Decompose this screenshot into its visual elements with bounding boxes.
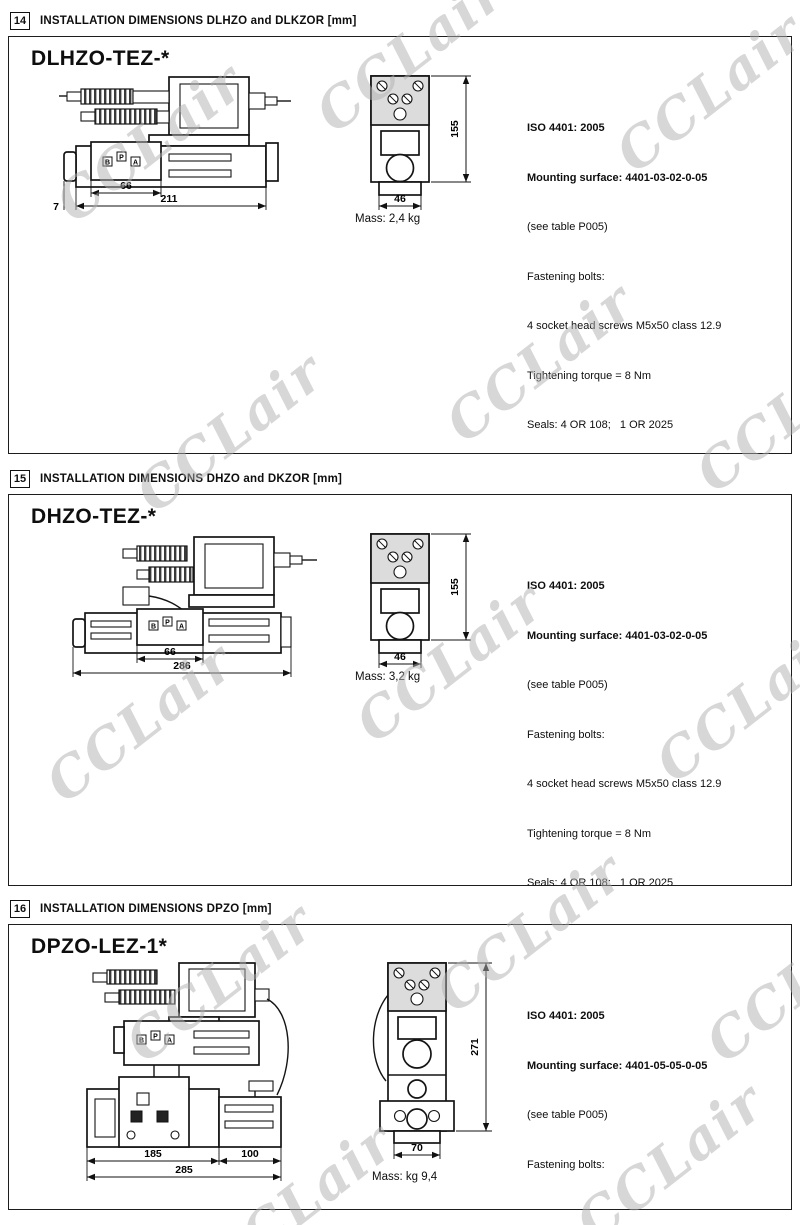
section-title: INSTALLATION DIMENSIONS DHZO and DKZOR [… xyxy=(40,473,342,485)
spec-line: Mounting surface: 4401-03-02-0-05 xyxy=(527,628,781,645)
spec-line: (see table P005) xyxy=(527,1107,781,1124)
valve-side-view: B P A xyxy=(73,537,317,653)
spec-line: Fastening bolts: xyxy=(527,269,781,286)
valve-block-dhzo: DHZO-TEZ-* xyxy=(19,505,781,886)
section-title: INSTALLATION DIMENSIONS DPZO [mm] xyxy=(40,903,272,915)
section-number: 14 xyxy=(10,12,30,30)
front-view: 271 70 Mass: kg 9,4 xyxy=(362,959,524,1183)
model-title: DPZO-LEZ-1* xyxy=(31,935,781,959)
svg-text:B: B xyxy=(151,624,156,631)
section-16-box: DPZO-LEZ-1* xyxy=(8,924,792,1210)
dim-length: 286 xyxy=(173,660,191,672)
dim-right: 100 xyxy=(241,1148,259,1160)
svg-text:P: P xyxy=(165,620,170,627)
spec-line: Fastening bolts: xyxy=(527,727,781,744)
section-number: 15 xyxy=(10,470,30,488)
dimension-lines: 185 100 285 xyxy=(87,1147,281,1181)
valve-block-dpzo: DPZO-LEZ-1* xyxy=(19,935,781,1210)
section-14-box: DLHZO-TEZ-* xyxy=(8,36,792,454)
section-15-box: DHZO-TEZ-* xyxy=(8,494,792,886)
mass-label: Mass: 2,4 kg xyxy=(355,213,497,225)
svg-text:A: A xyxy=(179,624,184,631)
dim-face-width: 70 xyxy=(411,1142,423,1154)
front-view: 155 46 Mass: 3,2 kg xyxy=(345,529,497,683)
front-view-drawing: 155 46 xyxy=(345,529,497,671)
svg-text:B: B xyxy=(105,160,110,167)
spec-line: ISO 4401: 2005 xyxy=(527,120,781,137)
section-number: 16 xyxy=(10,900,30,918)
side-view-drawing: B P A xyxy=(19,959,354,1185)
dim-inner: 66 xyxy=(164,646,176,658)
side-view-drawing: B P A 66 286 xyxy=(19,529,337,681)
spec-line: Mounting surface: 4401-05-05-0-05 xyxy=(527,1058,781,1075)
svg-text:P: P xyxy=(119,155,124,162)
spec-line: 4 socket head screws M5x50 class 12.9 xyxy=(527,776,781,793)
spec-line: Mounting surface: 4401-03-02-0-05 xyxy=(527,170,781,187)
dim-face-height: 155 xyxy=(449,578,461,596)
dim-offset: 7 xyxy=(53,201,59,213)
dim-length: 285 xyxy=(175,1164,193,1176)
model-title: DLHZO-TEZ-* xyxy=(31,47,781,71)
spec-list: ISO 4401: 2005 Mounting surface: 4401-03… xyxy=(527,545,781,886)
front-view-drawing: 155 46 xyxy=(345,71,497,213)
side-view-drawing: B P A 66 211 xyxy=(19,71,337,221)
model-title: DHZO-TEZ-* xyxy=(31,505,781,529)
spec-line: Seals: 4 OR 108; 1 OR 2025 xyxy=(527,875,781,886)
front-view-drawing: 271 70 xyxy=(362,959,524,1171)
section-title: INSTALLATION DIMENSIONS DLHZO and DLKZOR… xyxy=(40,15,357,27)
spec-line: (see table P005) xyxy=(527,677,781,694)
section-15-header: 15 INSTALLATION DIMENSIONS DHZO and DKZO… xyxy=(10,470,792,488)
dim-left: 185 xyxy=(144,1148,162,1160)
spec-line: Fastening bolts: xyxy=(527,1157,781,1174)
spec-line: ISO 4401: 2005 xyxy=(527,1008,781,1025)
dim-face-height: 271 xyxy=(469,1038,481,1056)
svg-text:A: A xyxy=(133,160,138,167)
dim-face-width: 46 xyxy=(394,193,406,205)
valve-block-dlhzo: DLHZO-TEZ-* xyxy=(19,47,781,454)
valve-side-view: B P A xyxy=(87,963,288,1147)
datasheet-page: 14 INSTALLATION DIMENSIONS DLHZO and DLK… xyxy=(0,0,800,1225)
dim-face-width: 46 xyxy=(394,651,406,663)
spec-list: ISO 4401: 2005 Mounting surface: 4401-05… xyxy=(527,975,781,1210)
svg-text:A: A xyxy=(167,1038,172,1045)
spec-list: ISO 4401: 2005 Mounting surface: 4401-03… xyxy=(527,87,781,454)
mass-label: Mass: kg 9,4 xyxy=(372,1171,524,1183)
svg-text:P: P xyxy=(153,1034,158,1041)
spec-line: ISO 4401: 2005 xyxy=(527,578,781,595)
spec-line: 4 socket head screws M6x40 class 12.9 xyxy=(527,1206,781,1210)
section-14-header: 14 INSTALLATION DIMENSIONS DLHZO and DLK… xyxy=(10,12,792,30)
front-view: 155 46 Mass: 2,4 kg xyxy=(345,71,497,225)
valve-side-view: B P A xyxy=(59,77,291,187)
dim-face-height: 155 xyxy=(449,120,461,138)
spec-line: Tightening torque = 8 Nm xyxy=(527,826,781,843)
dim-inner: 66 xyxy=(120,180,132,192)
svg-text:B: B xyxy=(139,1038,144,1045)
spec-line: Seals: 4 OR 108; 1 OR 2025 xyxy=(527,417,781,434)
section-16-header: 16 INSTALLATION DIMENSIONS DPZO [mm] xyxy=(10,900,792,918)
spec-line: (see table P005) xyxy=(527,219,781,236)
dim-length: 211 xyxy=(161,193,178,205)
spec-line: Tightening torque = 8 Nm xyxy=(527,368,781,385)
mass-label: Mass: 3,2 kg xyxy=(355,671,497,683)
spec-line: 4 socket head screws M5x50 class 12.9 xyxy=(527,318,781,335)
